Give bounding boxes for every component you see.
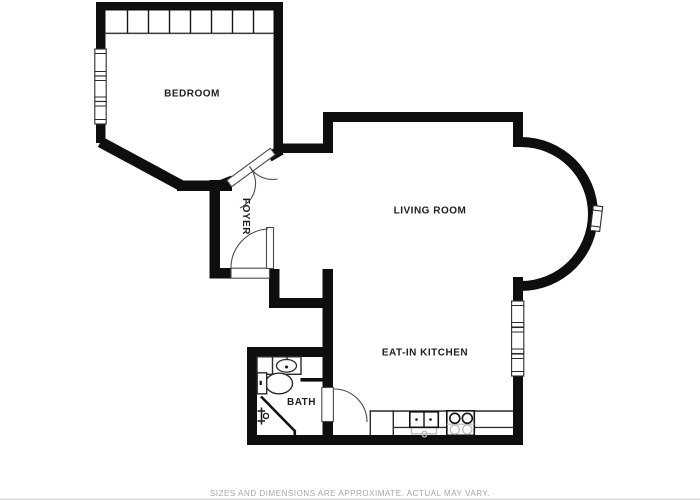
room-label-foyer: FOYER — [240, 198, 251, 235]
kitchen-fixtures — [370, 410, 513, 437]
room-label-bedroom: BEDROOM — [164, 89, 220, 100]
bedroom-windows — [95, 49, 106, 124]
closet — [105, 11, 274, 35]
window-icon — [95, 102, 106, 125]
window-icon — [95, 76, 106, 102]
window-icon — [512, 301, 524, 327]
entry-door — [231, 228, 274, 279]
counter — [370, 410, 513, 435]
kitchen-windows — [512, 301, 524, 376]
stove-icon — [447, 411, 475, 436]
bedroom-double-doors — [227, 148, 278, 208]
floor-plan-page: BEDROOM FOYER LIVING ROOM EAT-IN KITCHEN… — [0, 0, 700, 500]
room-label-kitchen: EAT-IN KITCHEN — [382, 348, 468, 359]
room-label-living-room: LIVING ROOM — [394, 206, 467, 217]
walls — [96, 2, 598, 445]
bath-sink-icon — [257, 357, 301, 375]
window-icon — [512, 354, 524, 376]
room-label-bath: BATH — [287, 397, 316, 408]
kitchen-sink-icon — [410, 412, 439, 437]
toilet-icon — [257, 373, 292, 394]
window-icon — [512, 328, 524, 354]
bath-door — [322, 388, 367, 423]
window-icon — [95, 49, 106, 76]
floor-plan-svg: BEDROOM FOYER LIVING ROOM EAT-IN KITCHEN… — [0, 0, 700, 500]
disclaimer-text: SIZES AND DIMENSIONS ARE APPROXIMATE. AC… — [210, 489, 490, 498]
